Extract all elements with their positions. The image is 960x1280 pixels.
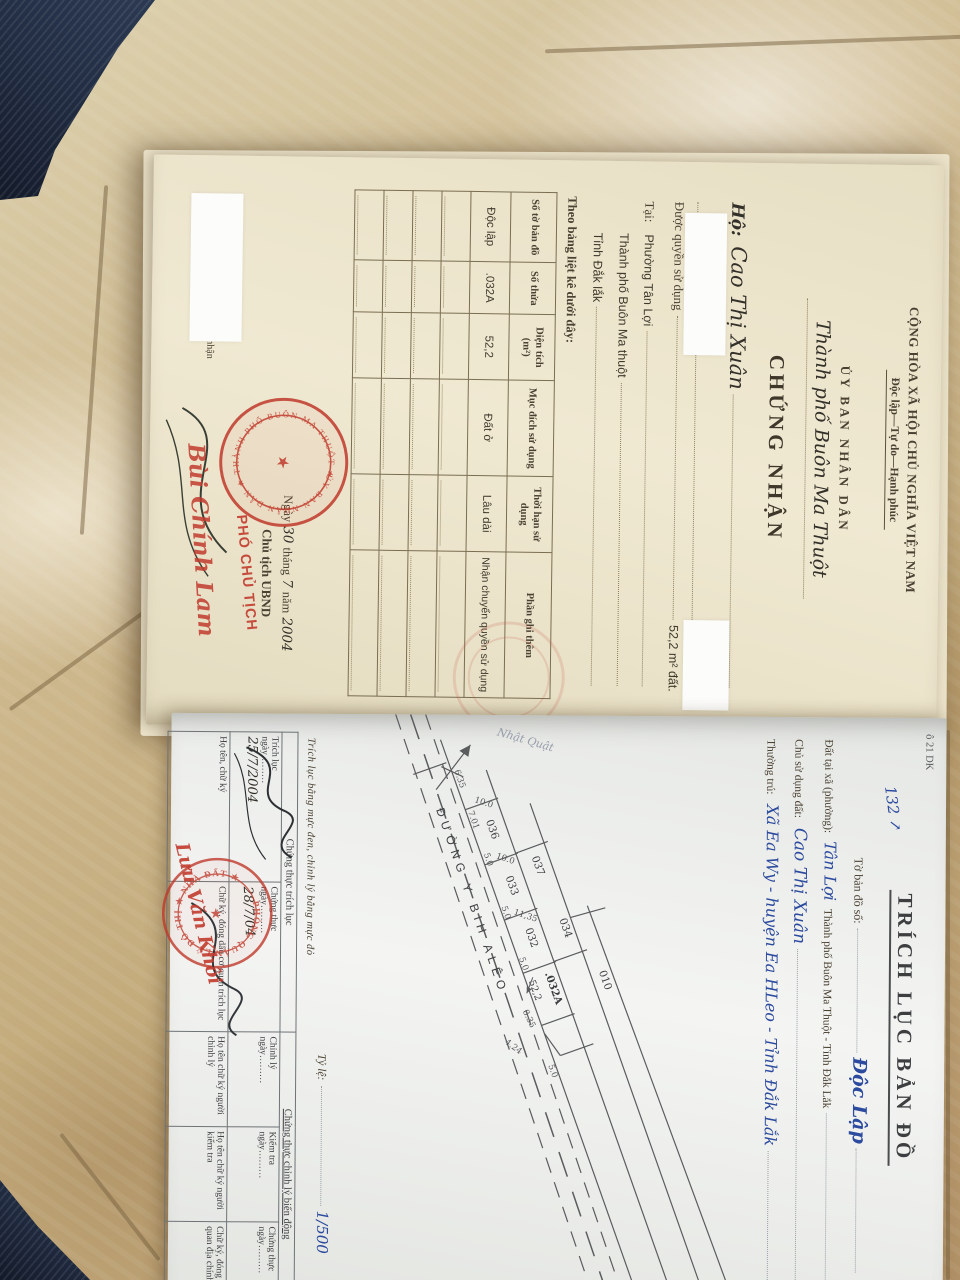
cell-ngay: ngày……… [255, 1226, 266, 1280]
country-title: CỘNG HÒA XÃ HỘI CHỦ NGHĨA VIỆT NAM [900, 165, 924, 735]
co-quan-dia-chinh-cell: Chữ ký, đóng dấu cơ quan địa chính [164, 1221, 227, 1280]
scale-label: Tỷ lệ: [315, 1054, 327, 1081]
sheet-value-blue: Độc Lập [848, 1057, 871, 1144]
dotted-leader [794, 949, 798, 1280]
address-line-1: Tại: Phường Tân Lợi [635, 201, 658, 691]
national-header: CỘNG HÒA XÃ HỘI CHỦ NGHĨA VIỆT NAM Độc l… [881, 165, 924, 735]
cell-ngay: ngày……… [256, 1131, 267, 1217]
photo-scene: CỘNG HÒA XÃ HỘI CHỦ NGHĨA VIỆT NAM Độc l… [0, 0, 960, 1280]
location-line: Đất tại xã (phường): Tân Lợi Thành phố B… [817, 739, 840, 1280]
residence-line: Thường trú: Xã Ea Wy - huyện Ea HLeo - T… [759, 739, 782, 1280]
owner-label: Chủ sử dụng đất: [792, 739, 805, 818]
redaction-box [682, 620, 729, 711]
faint-seal-inner-ring [467, 636, 550, 719]
tile-grout-line [946, 730, 950, 1280]
land-table: Số tờ bản đồ Số thửa Diện tích (m²) Mục … [347, 189, 557, 699]
owner-value-blue: Cao Thị Xuân [789, 828, 810, 944]
at-label: Tại: [641, 201, 657, 222]
dotted-leader [824, 1113, 826, 1280]
cell-purpose: Đất ở [467, 379, 508, 476]
dimension-label: 10.0 [473, 795, 494, 810]
table-intro: Theo bảng liệt kê dưới đây: [562, 196, 579, 343]
col-header: Thời hạn sử dụng [506, 476, 553, 553]
residence-value-blue: Xã Ea Wy - huyện Ea HLeo - Tỉnh Đắk Lắk [761, 804, 782, 1146]
nguoi-chinh-ly-cell: Họ tên chữ ký người chỉnh lý [165, 1031, 228, 1126]
scale-line: Tỷ lệ: 1/500 [313, 1054, 332, 1254]
dotted-leader [673, 316, 678, 621]
location-label: Đất tại xã (phường): [822, 739, 835, 833]
address-province: Tỉnh Đắk lắk [590, 233, 605, 303]
sheet-label: Tờ bản đồ số: [850, 858, 865, 924]
address-line-3: Tỉnh Đắk lắk [585, 233, 605, 691]
sheet-line: Tờ bản đồ số: Độc Lập [847, 858, 872, 1278]
dotted-leader [856, 929, 858, 1053]
date-year: 2004 [278, 617, 294, 652]
col-header: Diện tích (m²) [508, 314, 555, 381]
issuer-city-handwritten: Thành phố Buôn Ma Thuột [806, 164, 836, 734]
dotted-leader [855, 1149, 857, 1273]
cadastral-sketch: ĐƯỜNG Y BIH ALÊO Nhật Quật 037 036 034 0… [324, 714, 758, 1280]
cell-label: Chỉnh lý [267, 1036, 278, 1122]
dimension-label: 7.01 [465, 810, 481, 831]
corner-code: ô 21 DK [923, 734, 934, 770]
issuer-title: ỦY BAN NHÂN DÂN [832, 164, 856, 734]
chinh-ly-cell: Chỉnh lý ngày……… [227, 1032, 280, 1127]
national-motto: Độc lập—Tự do—Hạnh phúc [884, 369, 902, 530]
holder-name: Cao Thị Xuân [725, 246, 751, 390]
dotted-leader [617, 383, 622, 686]
dimension-label: 10.0 [495, 851, 516, 866]
col-header: Mục đích sử dụng [507, 380, 554, 477]
parcel-number: 033 [503, 874, 521, 897]
kiem-tra-cell: Kiểm tra ngày……… [227, 1127, 280, 1222]
map-title-wrap: TRÍCH LỤC BẢN ĐỒ [889, 718, 918, 1280]
parcel-number: 037 [529, 854, 547, 877]
col-header: Số thửa [509, 262, 556, 315]
cell-area: 52,2 [468, 313, 509, 380]
dimension-label: 5.0 [545, 1063, 559, 1079]
dotted-rule [803, 299, 808, 599]
dimension-label: 11,35 [512, 908, 538, 925]
residence-label: Thường trú: [764, 739, 776, 795]
parcel-number: 036 [483, 818, 501, 841]
parcel-number-main: .032A [542, 970, 565, 1007]
redaction-box [189, 193, 243, 342]
map-title: TRÍCH LỤC BẢN ĐỒ [888, 889, 918, 1166]
cell-label: Chứng thực [265, 1226, 276, 1280]
address-ward: Phường Tân Lợi [641, 234, 656, 326]
chung-thuc-2-cell: Chứng thực ngày……… [226, 1222, 279, 1280]
dimension-label: 5.0 [516, 956, 530, 972]
date-thang: tháng [280, 547, 294, 575]
address-line-2: Thành phố Buôn Ma thuột [611, 233, 631, 691]
grant-area-value: 52,2 m² đất. [666, 625, 681, 692]
map-extract-page: ô 21 DK 132 ↗ TRÍCH LỤC BẢN ĐỒ Tờ bản đồ… [167, 713, 946, 1280]
dimension-label: 8.35 [520, 1008, 537, 1029]
redaction-box [683, 213, 727, 356]
dotted-leader [320, 1085, 322, 1205]
address-city: Thành phố Buôn Ma thuột [615, 233, 631, 378]
location-suffix: Thành phố Buôn Ma Thuột - Tỉnh Đắk Lắk [820, 909, 833, 1109]
scale-value-blue: 1/500 [313, 1211, 331, 1254]
cell-sheet: Độc lập [470, 191, 511, 262]
cell-term: Lâu dài [466, 475, 507, 552]
certificate-page: CỘNG HÒA XÃ HỘI CHỦ NGHĨA VIỆT NAM Độc l… [146, 155, 944, 736]
owner-line: Chủ sử dụng đất: Cao Thị Xuân [786, 739, 810, 1280]
nguoi-kiem-tra-cell: Họ tên chữ ký người kiểm tra [165, 1126, 228, 1221]
dotted-leader [591, 307, 597, 685]
cell-ngay: ngày……… [257, 1036, 268, 1122]
pencil-road-note: Nhật Quật [495, 725, 556, 754]
cell-label: Kiểm tra [266, 1131, 277, 1217]
date-nam: năm [280, 592, 294, 614]
date-month: 7 [279, 579, 295, 588]
group-right-header: Chứng thực chỉnh lý biến động [278, 1032, 296, 1280]
col-header: Số tờ bản đồ [510, 192, 557, 263]
cell-parcel: .032A [469, 261, 510, 314]
dotted-leader [729, 395, 734, 688]
dotted-leader [766, 1151, 768, 1280]
location-value-blue: Tân Lợi [820, 841, 839, 901]
holder-label: Hộ: [727, 203, 747, 237]
dotted-leader [642, 331, 648, 686]
dimension-label: 5.0 [481, 852, 495, 868]
parcel-number: 032 [522, 926, 540, 949]
certificate-title: CHỨNG NHẬN [759, 163, 792, 733]
